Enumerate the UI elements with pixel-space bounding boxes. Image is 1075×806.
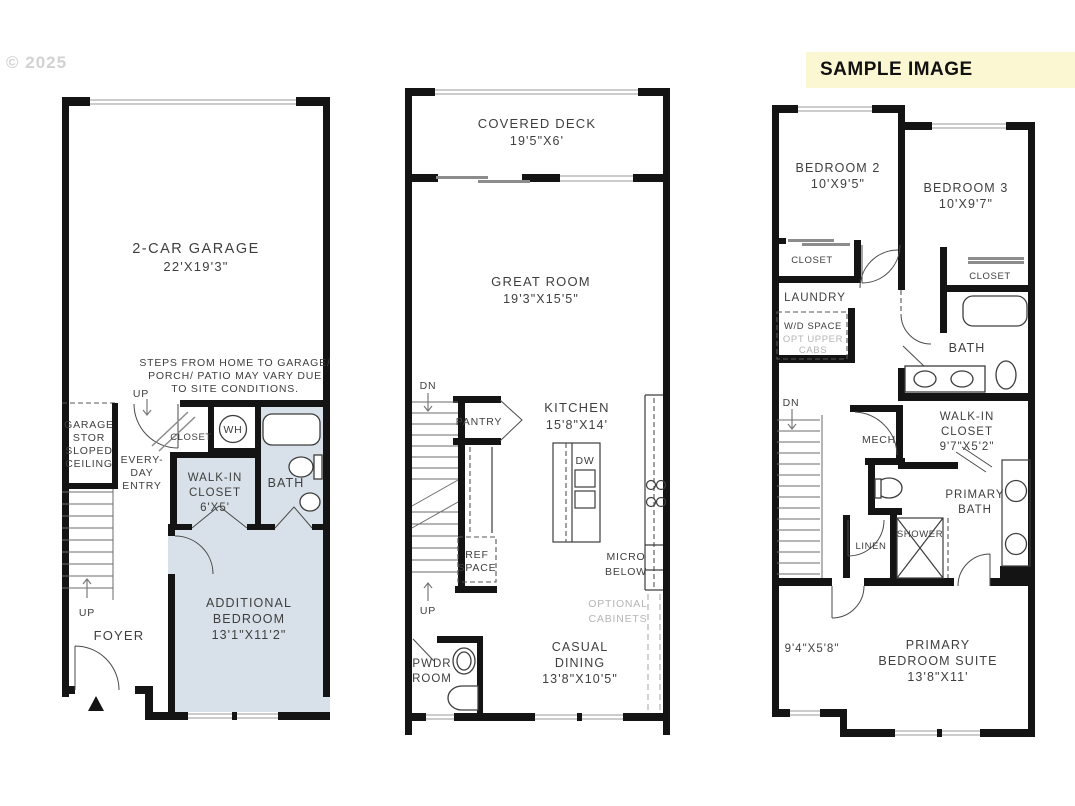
shower-x xyxy=(897,518,943,578)
linen-label: LINEN xyxy=(856,541,887,552)
up-label: UP xyxy=(133,388,149,400)
bathtub-shape xyxy=(963,296,1027,326)
great-room-label: GREAT ROOM xyxy=(491,274,591,289)
kitchen-label: KITCHEN xyxy=(544,400,609,415)
bath-door xyxy=(901,314,931,369)
pwdr-window xyxy=(426,713,454,721)
sink-shape xyxy=(914,371,936,387)
garage-dims: 22'X19'3" xyxy=(163,259,228,274)
walkin-closet-dims: 9'7"X5'2" xyxy=(940,441,995,453)
pwdr-room-label2: ROOM xyxy=(412,673,452,685)
suite-window xyxy=(942,729,980,737)
floor1-stairs xyxy=(62,489,113,600)
additional-bedroom-label1: ADDITIONAL xyxy=(206,596,292,610)
sink-shape xyxy=(448,686,478,710)
opt-upper-cabs-label2: CABS xyxy=(799,345,827,356)
deck-rail-line xyxy=(435,90,638,94)
sink-shape xyxy=(951,371,973,387)
toilet-tank-shape xyxy=(875,479,881,498)
great-room-dims: 19'3"X15'5" xyxy=(503,292,579,306)
closet2-label: CLOSET xyxy=(791,255,833,266)
stairs-up-label: UP xyxy=(79,607,95,619)
garage-stor-label2: STOR xyxy=(73,432,105,444)
garage-label: 2-CAR GARAGE xyxy=(132,241,260,257)
optional-cabinets-label1: OPTIONAL xyxy=(588,598,648,610)
floorplan-drawing: 2-CAR GARAGE 22'X19'3" STEPS FROM HOME T… xyxy=(0,0,1075,806)
wd-space-label: W/D SPACE xyxy=(784,321,842,332)
additional-bedroom-label2: BEDROOM xyxy=(213,612,285,626)
mech-label: MECH xyxy=(862,434,896,446)
floor3-stairs xyxy=(777,409,822,578)
laundry-door xyxy=(860,250,898,288)
dishwasher-front xyxy=(575,470,595,487)
up-arrow xyxy=(424,583,432,601)
ref-space-label1: REF xyxy=(465,549,488,561)
dn-label: DN xyxy=(420,380,437,392)
toilet-tank-shape xyxy=(314,455,322,479)
bedroom2-door xyxy=(862,245,900,283)
opt-upper-cabs-label1: OPT UPPER xyxy=(783,334,843,345)
primary-bath-door xyxy=(958,554,990,586)
suite-window xyxy=(790,709,820,717)
primary-suite-label1: PRIMARY xyxy=(906,638,970,652)
dn-label: DN xyxy=(783,397,800,409)
casual-dining-label1: CASUAL xyxy=(552,640,609,654)
bedroom2-label: BEDROOM 2 xyxy=(796,161,881,175)
pwdr-room-label1: PWDR xyxy=(412,658,451,670)
site-note-line2: PORCH/ PATIO MAY VARY DUE xyxy=(148,370,322,382)
bedroom2-dims: 10'X9'5" xyxy=(811,177,865,191)
additional-bedroom-dims: 13'1"X11'2" xyxy=(212,628,287,642)
closet-slider xyxy=(788,239,834,242)
suite-entry-door xyxy=(832,586,864,618)
shower-label: SHOWER xyxy=(897,529,943,540)
slider-door xyxy=(478,180,530,183)
primary-bath-label1: PRIMARY xyxy=(945,489,1004,501)
walkin-closet-label2: CLOSET xyxy=(941,426,993,438)
main-floor-plan: COVERED DECK 19'5"X6' GREAT ROOM 19'3"X1… xyxy=(405,88,670,735)
floorplan-image: © 2025 SAMPLE IMAGE xyxy=(0,0,1075,806)
casual-dining-label2: DINING xyxy=(555,656,605,670)
walkin-closet-dims: 6'X5' xyxy=(200,502,230,514)
optional-cabinets-label2: CABINETS xyxy=(589,613,648,625)
toilet-shape xyxy=(996,361,1016,389)
closet3-label: CLOSET xyxy=(969,271,1011,282)
primary-suite-label2: BEDROOM SUITE xyxy=(878,654,997,668)
dining-window xyxy=(582,713,623,721)
sink-shape xyxy=(1006,534,1027,555)
primary-suite-dims: 13'8"X11' xyxy=(907,670,968,684)
everyday-entry-label2: DAY xyxy=(130,467,153,479)
garage-door-line xyxy=(90,100,296,104)
walkin-closet-label2: CLOSET xyxy=(189,487,241,499)
garage-stor-label1: GARAGE xyxy=(64,419,114,431)
micro-below-label1: MICRO xyxy=(607,551,646,563)
bath-label: BATH xyxy=(268,476,305,490)
pantry-door xyxy=(500,400,522,441)
site-note-line3: TO SITE CONDITIONS. xyxy=(171,383,299,395)
everyday-entry-label1: EVERY- xyxy=(121,454,164,466)
cooktop-burner xyxy=(647,481,656,490)
entry-triangle-marker xyxy=(88,696,104,711)
wh-label: WH xyxy=(223,424,242,436)
primary-bath-label2: BATH xyxy=(958,504,992,516)
floor2-fixtures xyxy=(448,648,478,710)
suite-window xyxy=(895,729,937,737)
ref-space-label2: SPACE xyxy=(458,562,497,574)
bathtub-shape xyxy=(263,414,320,445)
covered-deck-dims: 19'5"X6' xyxy=(510,134,564,148)
closet-slider xyxy=(968,261,1024,264)
closet-label: CLOSET xyxy=(170,432,212,443)
foyer-label: FOYER xyxy=(94,628,145,643)
sink-shape xyxy=(1006,481,1027,502)
site-note-line1: STEPS FROM HOME TO GARAGE/ xyxy=(139,357,330,369)
toilet-inner xyxy=(457,652,471,670)
pantry-label: PANTRY xyxy=(456,416,502,428)
everyday-entry-label3: ENTRY xyxy=(122,480,161,492)
bath-label: BATH xyxy=(949,341,986,355)
walkin-closet-label1: WALK-IN xyxy=(188,472,243,484)
garage-stor-label3: SLOPED xyxy=(65,445,112,457)
floor2-walls xyxy=(405,88,670,735)
optional-cabinets-lines xyxy=(648,594,660,710)
bedroom-window xyxy=(188,712,232,720)
laundry-label: LAUNDRY xyxy=(784,292,846,304)
front-door xyxy=(75,646,119,690)
down-arrow xyxy=(788,409,796,429)
hall-dims-label: 9'4"X5'8" xyxy=(785,643,840,655)
dw-label: DW xyxy=(575,455,594,467)
sink-shape xyxy=(300,493,320,511)
bedroom-window xyxy=(237,712,278,720)
closet-slider xyxy=(802,243,850,246)
covered-deck-label: COVERED DECK xyxy=(478,116,596,131)
stair-break-lines xyxy=(412,480,458,528)
walkin-closet-label1: WALK-IN xyxy=(940,411,995,423)
toilet-shape xyxy=(289,457,313,477)
kitchen-dims: 15'8"X14' xyxy=(546,418,608,432)
slider-door xyxy=(436,176,488,179)
dining-window xyxy=(535,713,577,721)
garage-stor-label4: CEILING xyxy=(65,458,113,470)
upper-floor-plan: BEDROOM 2 10'X9'5" BEDROOM 3 10'X9'7" CL… xyxy=(772,105,1035,737)
closet-slider xyxy=(968,257,1024,260)
bedroom3-label: BEDROOM 3 xyxy=(924,181,1009,195)
down-arrow xyxy=(143,399,151,415)
dishwasher-front xyxy=(575,491,595,508)
bedroom3-dims: 10'X9'7" xyxy=(939,197,993,211)
first-floor-plan: 2-CAR GARAGE 22'X19'3" STEPS FROM HOME T… xyxy=(62,97,331,720)
casual-dining-dims: 13'8"X10'5" xyxy=(542,672,618,686)
up-label: UP xyxy=(420,605,436,617)
floor2-stairs xyxy=(412,393,458,601)
micro-below-label2: BELOW xyxy=(605,566,647,578)
